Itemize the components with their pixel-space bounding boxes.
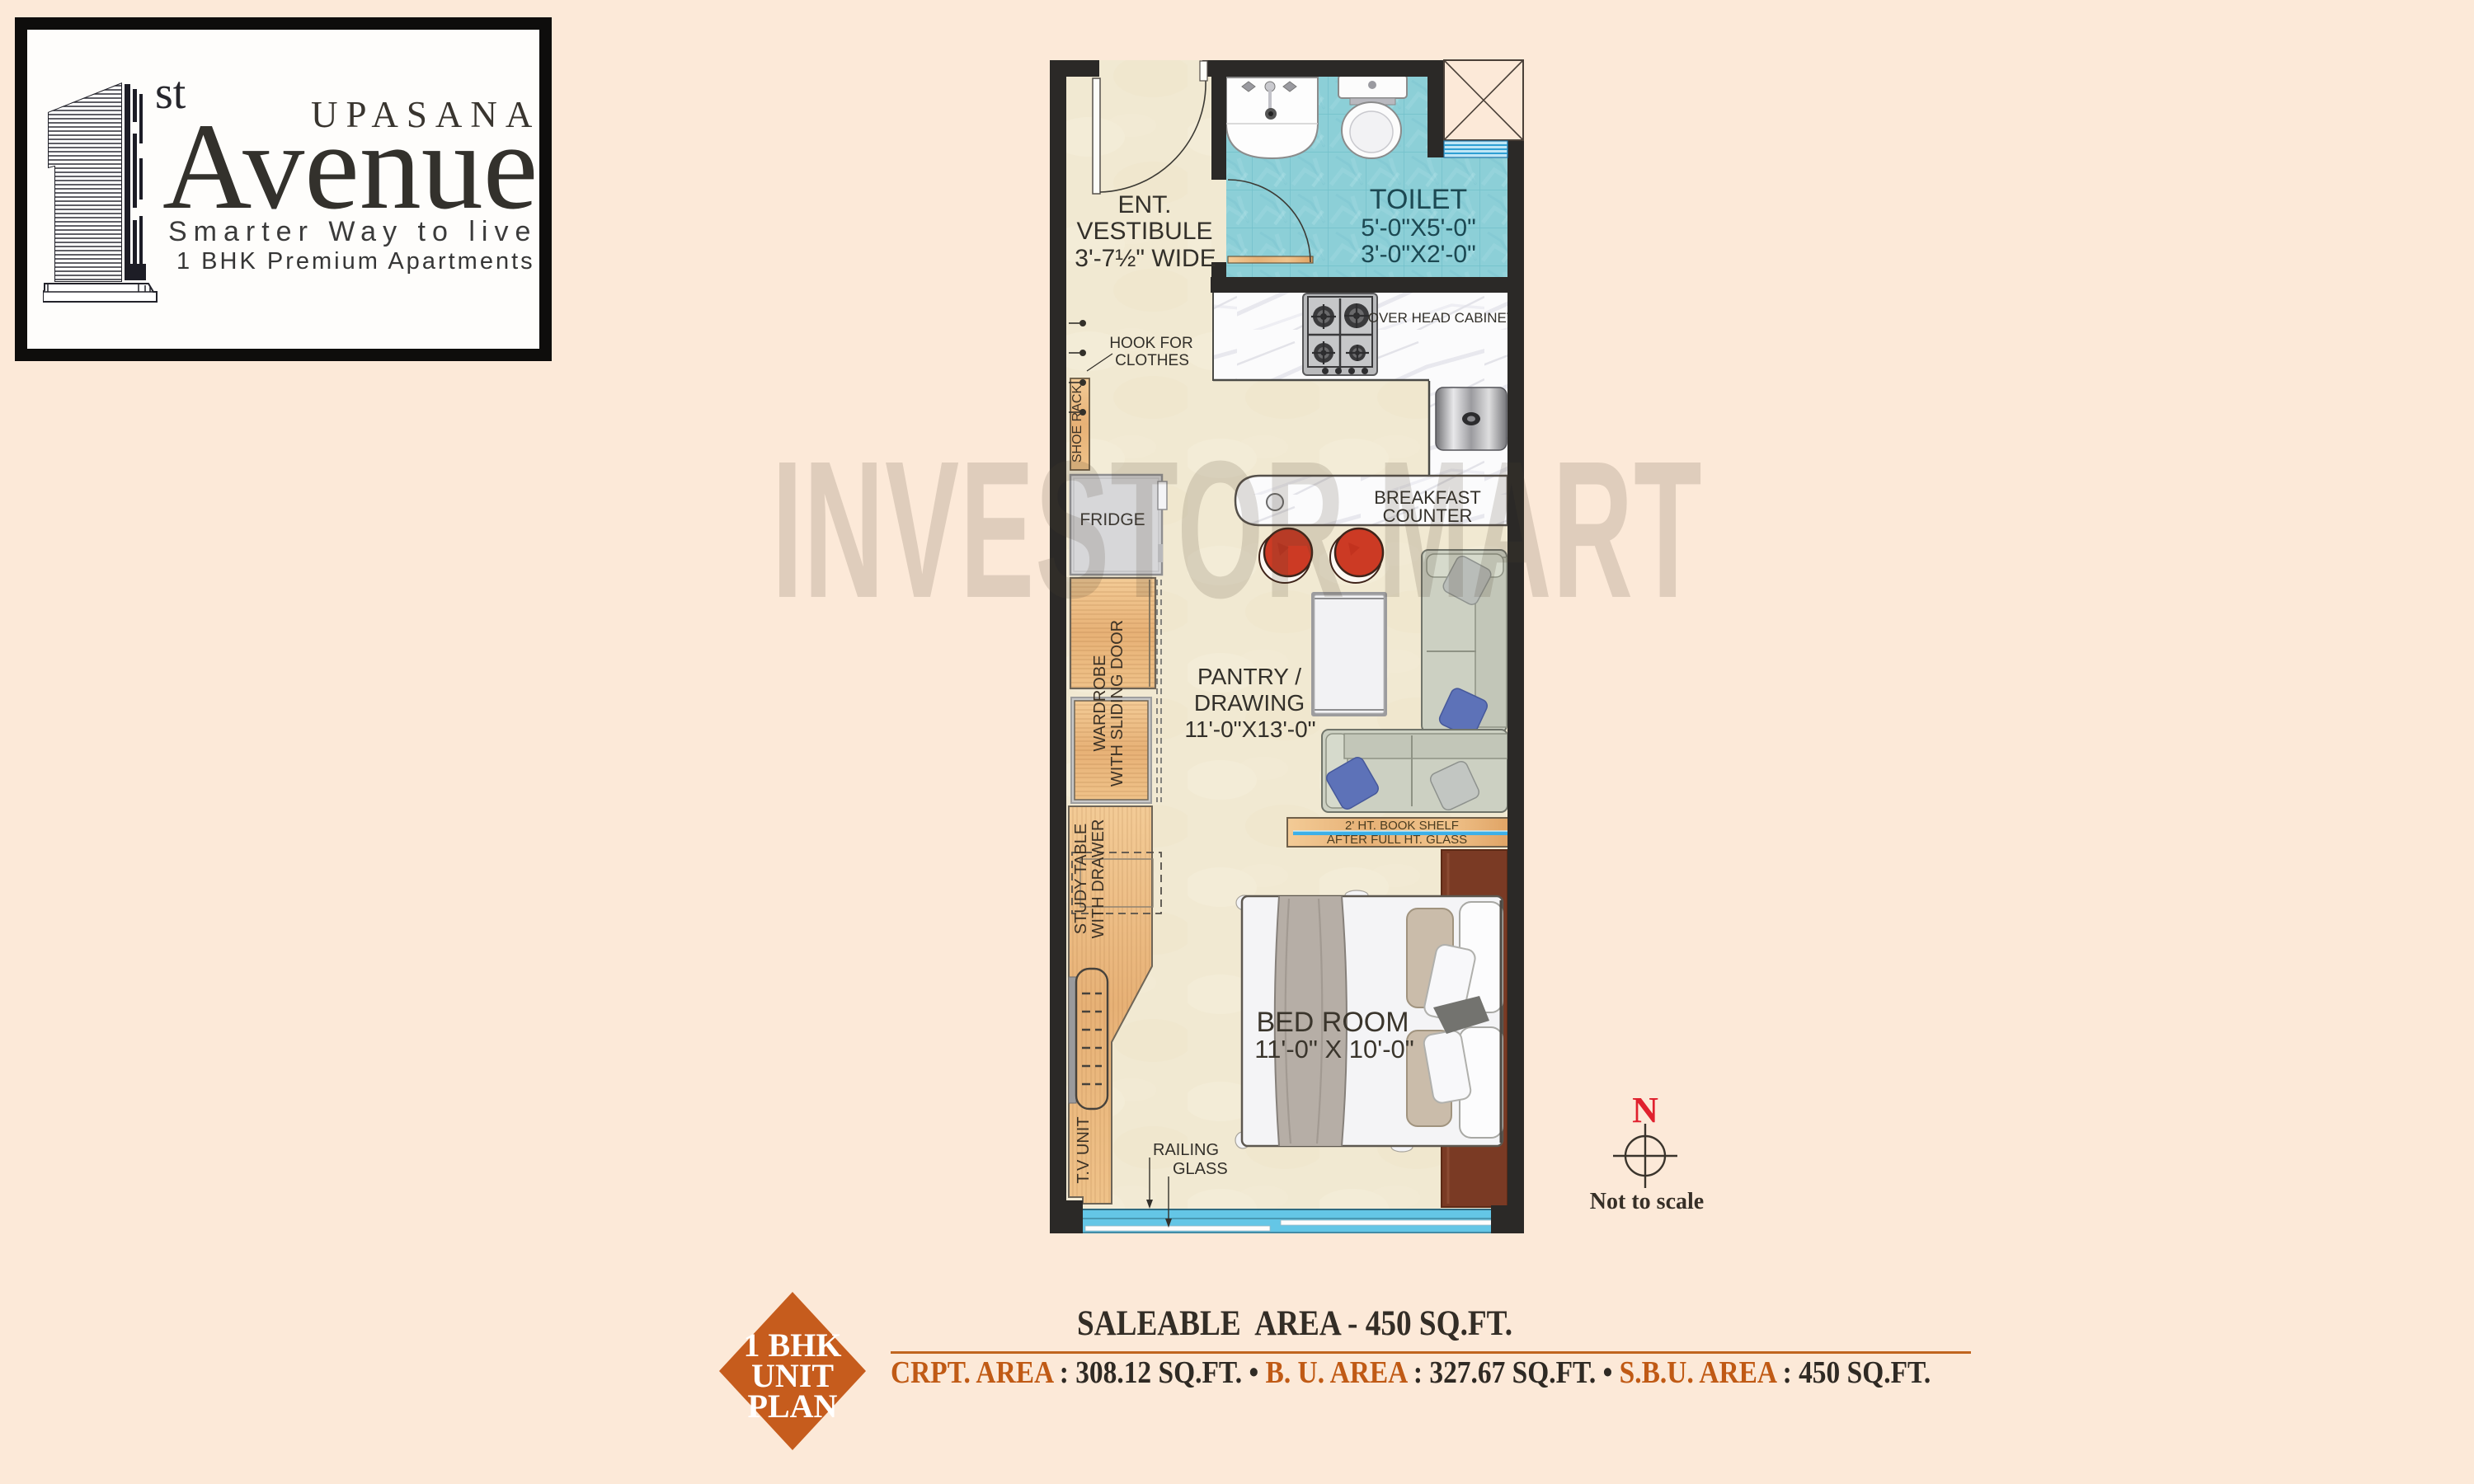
svg-text:T.V UNIT: T.V UNIT	[1075, 1116, 1093, 1183]
svg-text:5'-0"X5'-0": 5'-0"X5'-0"	[1361, 214, 1475, 242]
svg-text:3'-7½" WIDE: 3'-7½" WIDE	[1075, 245, 1216, 272]
svg-text:3'-0"X2'-0": 3'-0"X2'-0"	[1361, 241, 1475, 268]
svg-text:GLASS: GLASS	[1173, 1160, 1228, 1178]
svg-text:WITH DRAWER: WITH DRAWER	[1089, 819, 1108, 939]
svg-text:STUDY TABLE: STUDY TABLE	[1072, 824, 1090, 935]
svg-text:Not to scale: Not to scale	[1590, 1189, 1704, 1214]
svg-text:HOOK FOR: HOOK FOR	[1109, 335, 1192, 352]
svg-text:11'-0"X13'-0": 11'-0"X13'-0"	[1184, 716, 1315, 742]
svg-text:WITH SLIDING DOOR: WITH SLIDING DOOR	[1108, 620, 1126, 787]
svg-text:WARDROBE: WARDROBE	[1091, 655, 1109, 751]
svg-text:AFTER FULL HT. GLASS: AFTER FULL HT. GLASS	[1327, 833, 1467, 847]
svg-text:OVER HEAD CABINET: OVER HEAD CABINET	[1368, 310, 1516, 326]
svg-text:11'-0" X 10'-0": 11'-0" X 10'-0"	[1254, 1035, 1414, 1064]
svg-text:DRAWING: DRAWING	[1194, 690, 1305, 716]
svg-text:TOILET: TOILET	[1370, 184, 1467, 215]
svg-text:RAILING: RAILING	[1153, 1141, 1219, 1159]
svg-text:CLOTHES: CLOTHES	[1115, 352, 1189, 369]
svg-text:PLAN: PLAN	[748, 1388, 838, 1425]
svg-text:BED ROOM: BED ROOM	[1256, 1007, 1409, 1038]
svg-text:ENT.: ENT.	[1117, 191, 1171, 218]
svg-text:VESTIBULE: VESTIBULE	[1076, 218, 1212, 245]
svg-text:PANTRY /: PANTRY /	[1197, 664, 1301, 689]
